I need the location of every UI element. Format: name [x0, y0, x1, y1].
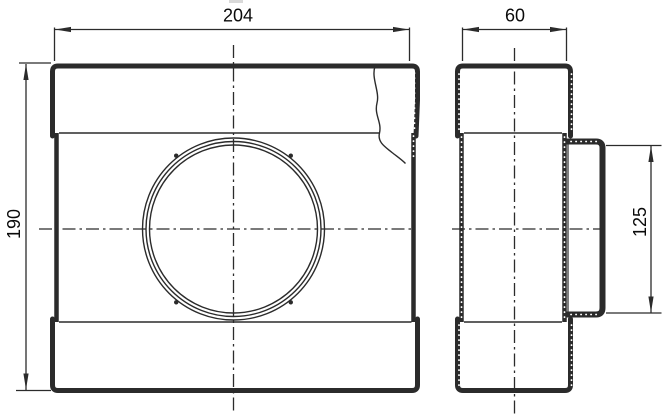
arrowhead-left — [463, 27, 479, 32]
dimension-front-height: 190 — [4, 63, 51, 391]
front-bottom-collar-outline — [53, 319, 418, 391]
dimension-value-width: 204 — [223, 6, 253, 26]
side-spigot-outline — [566, 142, 603, 315]
arrowhead-right — [550, 27, 566, 32]
arrowhead-top — [23, 64, 28, 80]
dimension-value-depth: 60 — [505, 6, 525, 26]
side-view — [452, 48, 603, 414]
front-view — [39, 45, 418, 414]
break-line — [374, 67, 406, 164]
arrowhead-bottom — [648, 297, 653, 313]
technical-drawing-canvas: 204 60 190 125 — [0, 0, 663, 419]
dimension-spigot-diameter: 125 — [606, 146, 662, 314]
spigot-tab — [174, 154, 178, 158]
front-top-collar-outline — [53, 66, 418, 136]
arrowhead-bottom — [23, 374, 28, 390]
cropped-artifact — [229, 0, 243, 3]
arrowhead-right — [393, 27, 409, 32]
dimension-front-width: 204 — [55, 6, 410, 62]
arrowhead-top — [648, 146, 653, 162]
dimension-value-height: 190 — [4, 209, 24, 239]
duct-fitting-drawing: 204 60 190 125 — [0, 0, 663, 419]
spigot-tab — [289, 300, 293, 304]
arrowhead-left — [55, 27, 71, 32]
spigot-tab — [289, 154, 293, 158]
spigot-tab — [174, 300, 178, 304]
dimension-value-diameter: 125 — [630, 207, 650, 237]
